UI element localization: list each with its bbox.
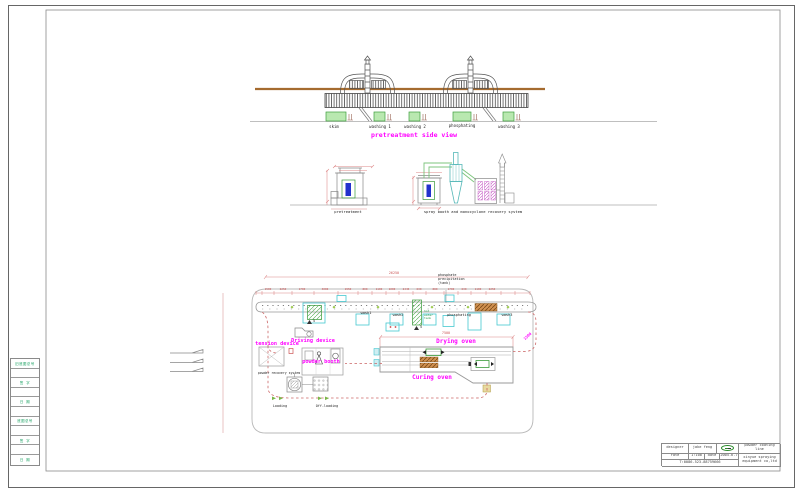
powder-booth-label: powder booth bbox=[302, 360, 339, 365]
tank-label-skim: skim bbox=[329, 125, 339, 129]
designer-value: jake feng bbox=[689, 444, 717, 454]
dim-segment: 1500 bbox=[265, 288, 272, 291]
pretreatment-label: pretreatment bbox=[334, 210, 361, 214]
border-field-strip: 旧底图总号 签 字 日 期 底图总号 签 字 日 期 bbox=[10, 358, 40, 466]
tank-label-phosphating: phosphating bbox=[449, 124, 476, 128]
dim-segment: 800 bbox=[362, 288, 367, 291]
border-field: 底图总号 bbox=[11, 417, 39, 427]
border-field bbox=[11, 426, 39, 436]
designer-label: designer bbox=[662, 444, 689, 454]
border-field: 旧底图总号 bbox=[11, 359, 39, 369]
ovens bbox=[380, 347, 513, 392]
dim-segment: 1700 bbox=[299, 288, 306, 291]
tension-device-shape bbox=[259, 347, 293, 366]
drawing-sheet: skim washing 1 washing 2 phosphating was… bbox=[0, 0, 800, 493]
dim-segment: 2445 bbox=[403, 288, 410, 291]
marker-5b: 5 bbox=[420, 326, 422, 330]
cad-linework bbox=[0, 0, 800, 493]
dim-oven: 7500 bbox=[442, 332, 450, 336]
tank-label-washing1: washing 1 bbox=[369, 125, 391, 129]
marker-5a: 5 bbox=[313, 320, 315, 324]
border-field bbox=[11, 445, 39, 455]
company-name: xinyue spraying equipment co,ltd bbox=[739, 454, 781, 467]
dim-segment: 1100 bbox=[376, 288, 383, 291]
loading-label: Loading bbox=[273, 405, 287, 409]
border-field bbox=[11, 388, 39, 398]
plan-linework bbox=[170, 275, 536, 433]
dim-segment: 2250 bbox=[280, 288, 287, 291]
dim-segment: 1700 bbox=[448, 288, 455, 291]
border-field: 日 期 bbox=[11, 455, 39, 465]
dim-segment: 630 bbox=[461, 288, 466, 291]
dim-segment: 2250 bbox=[489, 288, 496, 291]
border-field: 签 字 bbox=[11, 378, 39, 388]
curing-oven-label: Curing oven bbox=[412, 375, 452, 381]
phosphate-tank-note: phosphate precipitation (tank) bbox=[438, 273, 465, 285]
side-view-title: pretreatment side view bbox=[371, 132, 457, 139]
flow-arrows bbox=[170, 350, 203, 372]
driving-device-label: Driving device bbox=[291, 339, 335, 344]
wash1-label: wash1 bbox=[361, 312, 372, 316]
dim-segment: 3000 bbox=[322, 288, 329, 291]
wash2-label: wash2 bbox=[393, 314, 404, 318]
loading-arrows bbox=[272, 397, 329, 401]
tank-label-washing2: washing 2 bbox=[404, 125, 426, 129]
powder-recovery-shape bbox=[287, 373, 328, 392]
driving-device-shape bbox=[295, 328, 313, 337]
border-field bbox=[11, 369, 39, 379]
dim-segment: 630 bbox=[416, 288, 421, 291]
dim-segment: 1100 bbox=[475, 288, 482, 291]
logo-cell bbox=[717, 444, 739, 454]
plan-tanks bbox=[303, 295, 510, 331]
dim-segment: 1950 bbox=[345, 288, 352, 291]
dim-overall: 26250 bbox=[389, 272, 399, 276]
phone-number: T:0086-523-88759666 bbox=[662, 460, 739, 467]
title-block: designer jake feng powder coating line r… bbox=[661, 443, 780, 466]
border-field: 签 字 bbox=[11, 436, 39, 446]
dim-segment: 1000 bbox=[389, 288, 396, 291]
border-field: 日 期 bbox=[11, 397, 39, 407]
dim-segment: 880 bbox=[432, 288, 437, 291]
border-field bbox=[11, 407, 39, 417]
wash3-label: wash3 bbox=[502, 314, 513, 318]
sheet-frame bbox=[9, 6, 795, 488]
pretreatment-tanks bbox=[326, 112, 514, 121]
powder-recovery-label: powder recovery system bbox=[258, 372, 300, 375]
spray-system-label: spray booth and monocyclone recovery sys… bbox=[424, 210, 522, 214]
phosphating-label: phosphating bbox=[447, 314, 471, 318]
side-view-linework bbox=[250, 56, 657, 122]
company-logo-icon bbox=[721, 445, 734, 451]
tank-label-washing3: washing 3 bbox=[498, 125, 520, 129]
offloading-label: Off-loading bbox=[316, 405, 338, 409]
elevation-linework bbox=[290, 153, 657, 211]
drying-oven-label: Drying oven bbox=[436, 339, 476, 345]
product-name: powder coating line bbox=[739, 444, 781, 454]
hot-water-tank-note: hot water tank bbox=[424, 310, 433, 321]
